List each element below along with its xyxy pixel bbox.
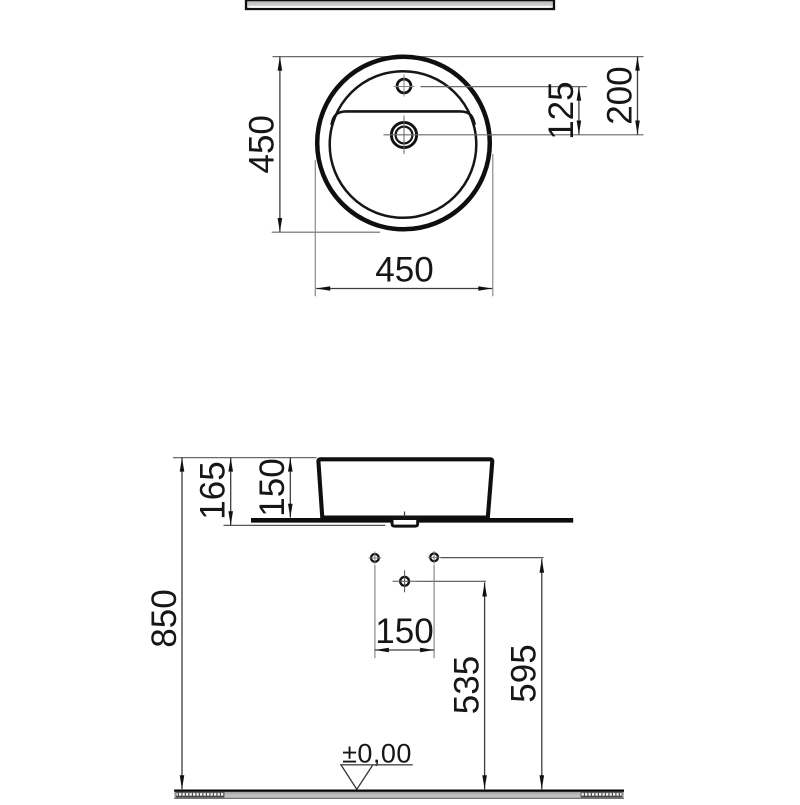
svg-text:125: 125 [542, 81, 581, 139]
svg-text:150: 150 [375, 612, 433, 651]
svg-text:450: 450 [243, 115, 282, 173]
svg-text:150: 150 [253, 458, 292, 516]
svg-text:535: 535 [448, 656, 487, 714]
svg-text:450: 450 [375, 251, 433, 290]
svg-text:±0,00: ±0,00 [342, 738, 412, 768]
svg-text:850: 850 [145, 589, 184, 647]
svg-text:200: 200 [601, 66, 640, 124]
svg-text:595: 595 [505, 644, 544, 702]
svg-text:165: 165 [194, 461, 233, 519]
